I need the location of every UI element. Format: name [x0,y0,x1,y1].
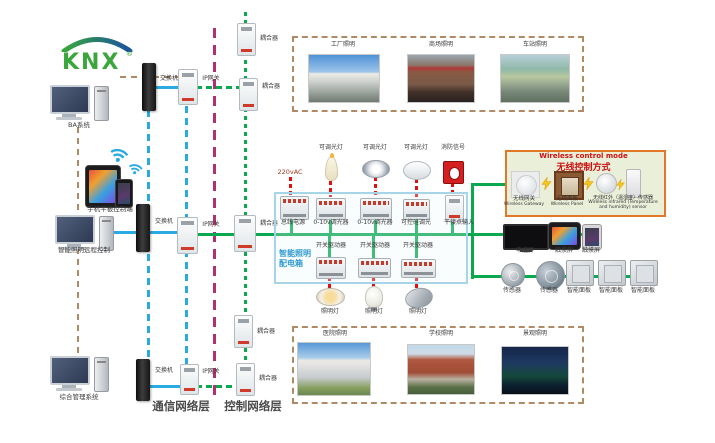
fire-alarm-icon [443,161,464,184]
school-photo [407,344,475,395]
ethernet-switch-device [136,359,150,401]
cabinet-title: 智能照明 配电箱 [279,249,311,269]
knx-logo-registered: ® [126,50,133,58]
fire-signal-label: 消防信号 [437,145,469,152]
ethernet-switch-device [142,63,156,111]
module-label: 开关驱动器 [357,243,393,250]
wireless-ir-sensor-icon [596,173,617,194]
touch-screen-device [548,222,581,250]
spotlight-icon [403,285,435,310]
wireless-item-label-en: Wireless Gateway [500,203,548,208]
mall-photo [407,54,475,103]
management-system-computer [50,356,108,396]
cabinet-title-line2: 配电箱 [279,259,311,269]
smart-panel-icon [566,260,594,286]
wireless-title-en: Wireless control mode [505,152,662,160]
ba-system-computer [50,85,108,125]
gateway1-coupler-line [196,86,243,89]
dimmable-lamp-icon [325,156,338,181]
ip-gateway-device [178,69,198,105]
wireless-item-label-en: Wireless Panel [547,203,587,208]
triac-dimmer-module [403,199,430,220]
coupler-device [234,215,256,252]
bus-right-branch-line [471,183,474,279]
flat-ceiling-lamp-icon [316,288,345,306]
scene-label: 工厂照明 [300,42,386,49]
bulb-lamp-icon [365,286,383,308]
coupler-label: 耦合器 [254,376,282,383]
wireless-item-label-en: Wireless infrared (Temperature and humid… [584,201,662,210]
module-label: 0-10v调光器 [353,220,397,227]
coupler-label: 耦合器 [252,329,280,336]
ceiling-lamp-icon [403,161,431,180]
lamp-label: 照明灯 [317,309,343,316]
wireless-th-sensor-icon [626,169,641,198]
knx-logo: KNX ® [56,34,140,78]
module-label: 可控硅调光 [396,220,436,227]
monitor-icon [55,215,95,244]
switch-label: 交换机 [150,368,178,375]
lightning-icon [583,177,594,190]
switch-actuator-module [316,257,346,279]
module-label: 开关驱动器 [400,243,436,250]
dimmer-module [316,198,346,220]
sensor-label: 传感器 [499,288,525,295]
load-label: 可调光灯 [402,145,430,152]
scene-label: 学校照明 [404,331,478,338]
wifi-icon [126,160,145,176]
switch-actuator-module [401,259,436,278]
power-label: 220vAC [272,168,308,176]
dimmer-module [360,198,392,220]
bus-power-module [280,196,309,220]
sensor-icon [536,261,565,290]
lightning-icon [541,177,552,190]
factory-photo [308,54,380,103]
screen-label: 触摸屏 [549,248,579,255]
ba-system-label: BA系统 [46,122,112,129]
monitor-icon [50,356,90,385]
switch3-gateway3-line [150,385,184,388]
bus-wireless-line [473,183,507,186]
monitor-icon [50,85,90,114]
load-label: 可调光灯 [317,145,345,152]
switch-actuator-module [358,258,391,278]
cabinet-title-line1: 智能照明 [279,249,311,259]
pc-tower-icon [94,357,109,392]
panel-label: 智能面板 [564,288,594,295]
load-label: 可调光灯 [361,145,389,152]
coupler-label: 耦合器 [255,36,283,43]
lamp-label: 照明灯 [361,309,387,316]
screen-label: 中控屏 [508,248,542,255]
control-layer-label: 控制网络层 [220,398,286,414]
ip-gateway-label: IP网关 [196,76,226,83]
coupler-device [239,78,258,111]
station-photo [500,54,570,103]
module-label: 0-10v调光器 [309,220,353,227]
smart-panel-icon [630,260,658,286]
smart-panel-icon [598,260,626,286]
module-label: 开关驱动器 [313,243,349,250]
dry-contact-module [445,195,464,222]
network-layer-divider-line [213,28,216,402]
lightning-icon [616,179,625,190]
knx-logo-text: KNX [62,50,120,75]
scene-label: 景观照明 [496,331,574,338]
phone-device [115,179,133,208]
pc-tower-icon [94,86,109,121]
coupler-device [237,23,256,56]
ip-gateway-label: IP网关 [196,369,226,376]
panel-label: 智能面板 [628,288,658,295]
scene-label: 车站照明 [496,42,574,49]
lamp-label: 照明灯 [405,309,431,316]
module-label: 总线电源 [272,220,314,227]
landscape-photo [501,346,569,395]
ethernet-switch-device [136,204,150,252]
scene-label: 医院照明 [296,331,374,338]
sensor-icon [501,263,525,287]
coupler-device [234,315,253,348]
communication-layer-label: 通信网络层 [148,398,214,414]
scene-label: 商场照明 [404,42,478,49]
lighting-control-label: 智能照明远程控制 [38,247,130,254]
module-label: 干接点输入 [437,220,481,227]
screen-label: 触摸屏 [577,248,605,255]
panel-label: 智能面板 [596,288,626,295]
ip-gateway-label: IP网关 [196,222,226,229]
coupler-label: 耦合器 [257,84,285,91]
diagram-canvas: KNX ® BA系统 手机平板控制端 智能照明远程控制 综合管理系统 交换机 I… [0,0,715,443]
ip-gateway-device [177,217,198,254]
hospital-photo [297,342,371,396]
switch-label: 交换机 [150,219,178,226]
coupler-device [236,363,255,396]
wireless-gateway-icon [511,171,540,198]
sensor-label: 传感器 [536,288,562,295]
downlight-icon [362,160,390,178]
management-system-label: 综合管理系统 [43,394,115,401]
